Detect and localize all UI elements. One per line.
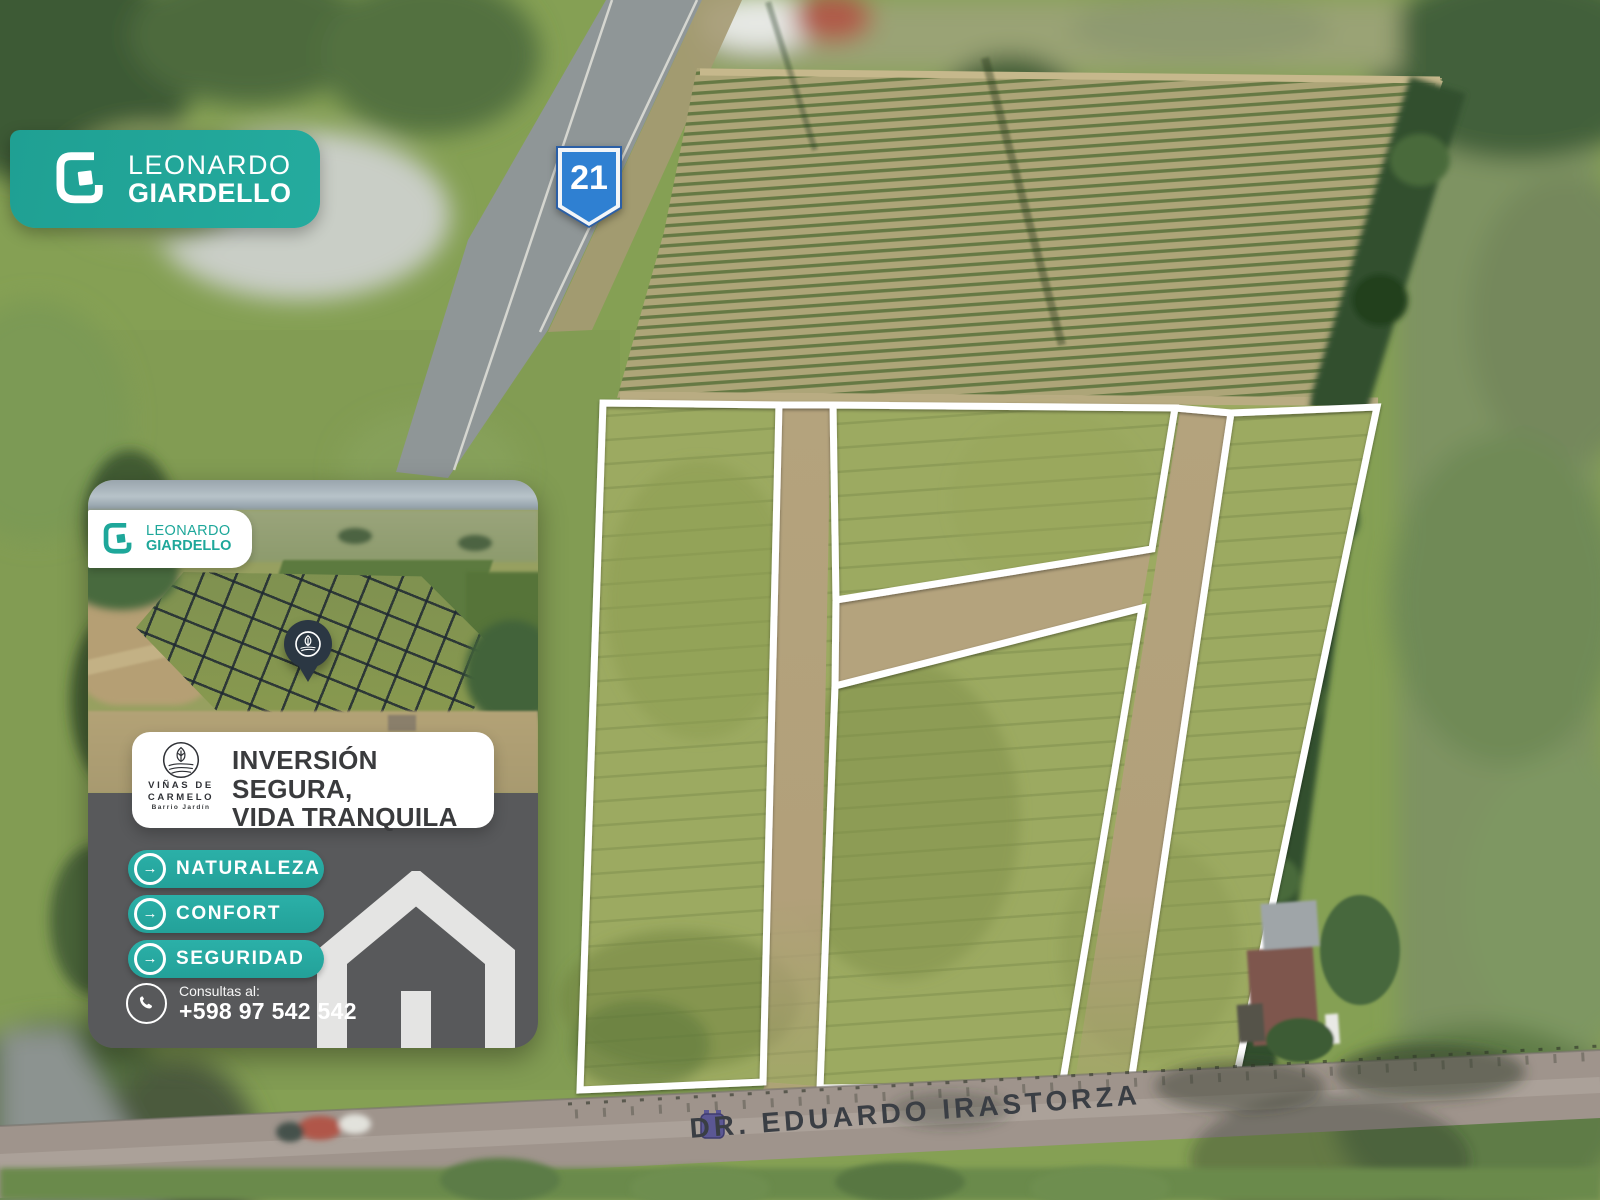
- route-21-shield: 21: [556, 146, 622, 228]
- feature-label: SEGURIDAD: [176, 948, 304, 970]
- feature-pill-confort: → CONFORT: [128, 895, 324, 933]
- brand-badge: LEONARDO GIARDELLO: [10, 130, 320, 228]
- contact-label: Consultas al:: [179, 984, 357, 999]
- brand-name-line2: GIARDELLO: [128, 179, 292, 207]
- vineyard-emblem-icon: [162, 741, 200, 779]
- vineyard-emblem: VIÑAS DE CARMELO Barrio Jardín: [132, 732, 230, 828]
- card-brand-line1: LEONARDO: [146, 524, 231, 539]
- real-estate-aerial-ad: DR. EDUARDO IRASTORZA LEONARDO GIARDELLO…: [0, 0, 1600, 1200]
- route-number: 21: [556, 146, 622, 228]
- feature-pill-naturaleza: → NATURALEZA: [128, 850, 324, 888]
- feature-label: NATURALEZA: [176, 858, 320, 880]
- card-brand-badge: LEONARDO GIARDELLO: [88, 510, 252, 568]
- phone-icon: [126, 983, 167, 1024]
- location-pin-icon: [284, 620, 332, 668]
- card-brand-logo-icon: [101, 519, 137, 559]
- emblem-line2: CARMELO: [148, 792, 214, 803]
- contact-phone: +598 97 542 542: [179, 999, 357, 1023]
- headline-card: VIÑAS DE CARMELO Barrio Jardín INVERSIÓN…: [132, 732, 494, 828]
- emblem-tagline: Barrio Jardín: [152, 804, 211, 811]
- arrow-circle-icon: →: [134, 898, 166, 930]
- card-brand-line2: GIARDELLO: [146, 539, 231, 554]
- arrow-circle-icon: →: [134, 943, 166, 975]
- headline-line1: INVERSIÓN SEGURA,: [232, 746, 488, 803]
- emblem-line1: VIÑAS DE: [148, 780, 214, 791]
- feature-label: CONFORT: [176, 903, 281, 925]
- arrow-circle-icon: →: [134, 853, 166, 885]
- brand-logo-icon: [52, 146, 112, 212]
- promo-card: LEONARDO GIARDELLO → NATURALEZA: [88, 480, 538, 1048]
- feature-pill-seguridad: → SEGURIDAD: [128, 940, 324, 978]
- contact-row: Consultas al: +598 97 542 542: [126, 983, 357, 1024]
- brand-name-line1: LEONARDO: [128, 151, 292, 179]
- headline-line2: VIDA TRANQUILA: [232, 803, 488, 832]
